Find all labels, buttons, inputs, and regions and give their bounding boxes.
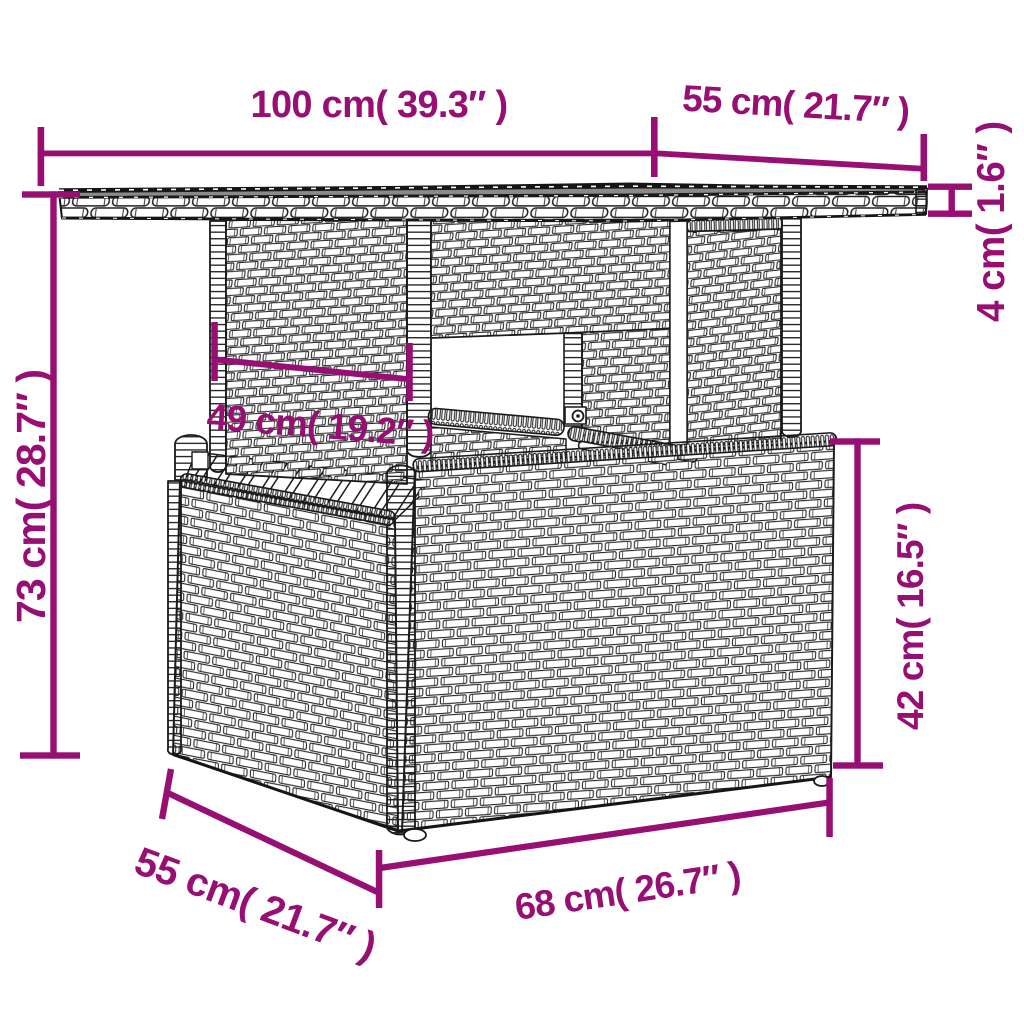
svg-text:4 cm( 1.6″ ): 4 cm( 1.6″ ) xyxy=(970,121,1013,322)
svg-text:73 cm( 28.7″ ): 73 cm( 28.7″ ) xyxy=(8,370,54,623)
svg-text:42 cm( 16.5″ ): 42 cm( 16.5″ ) xyxy=(890,503,931,730)
svg-text:100 cm( 39.3″ ): 100 cm( 39.3″ ) xyxy=(251,84,508,126)
